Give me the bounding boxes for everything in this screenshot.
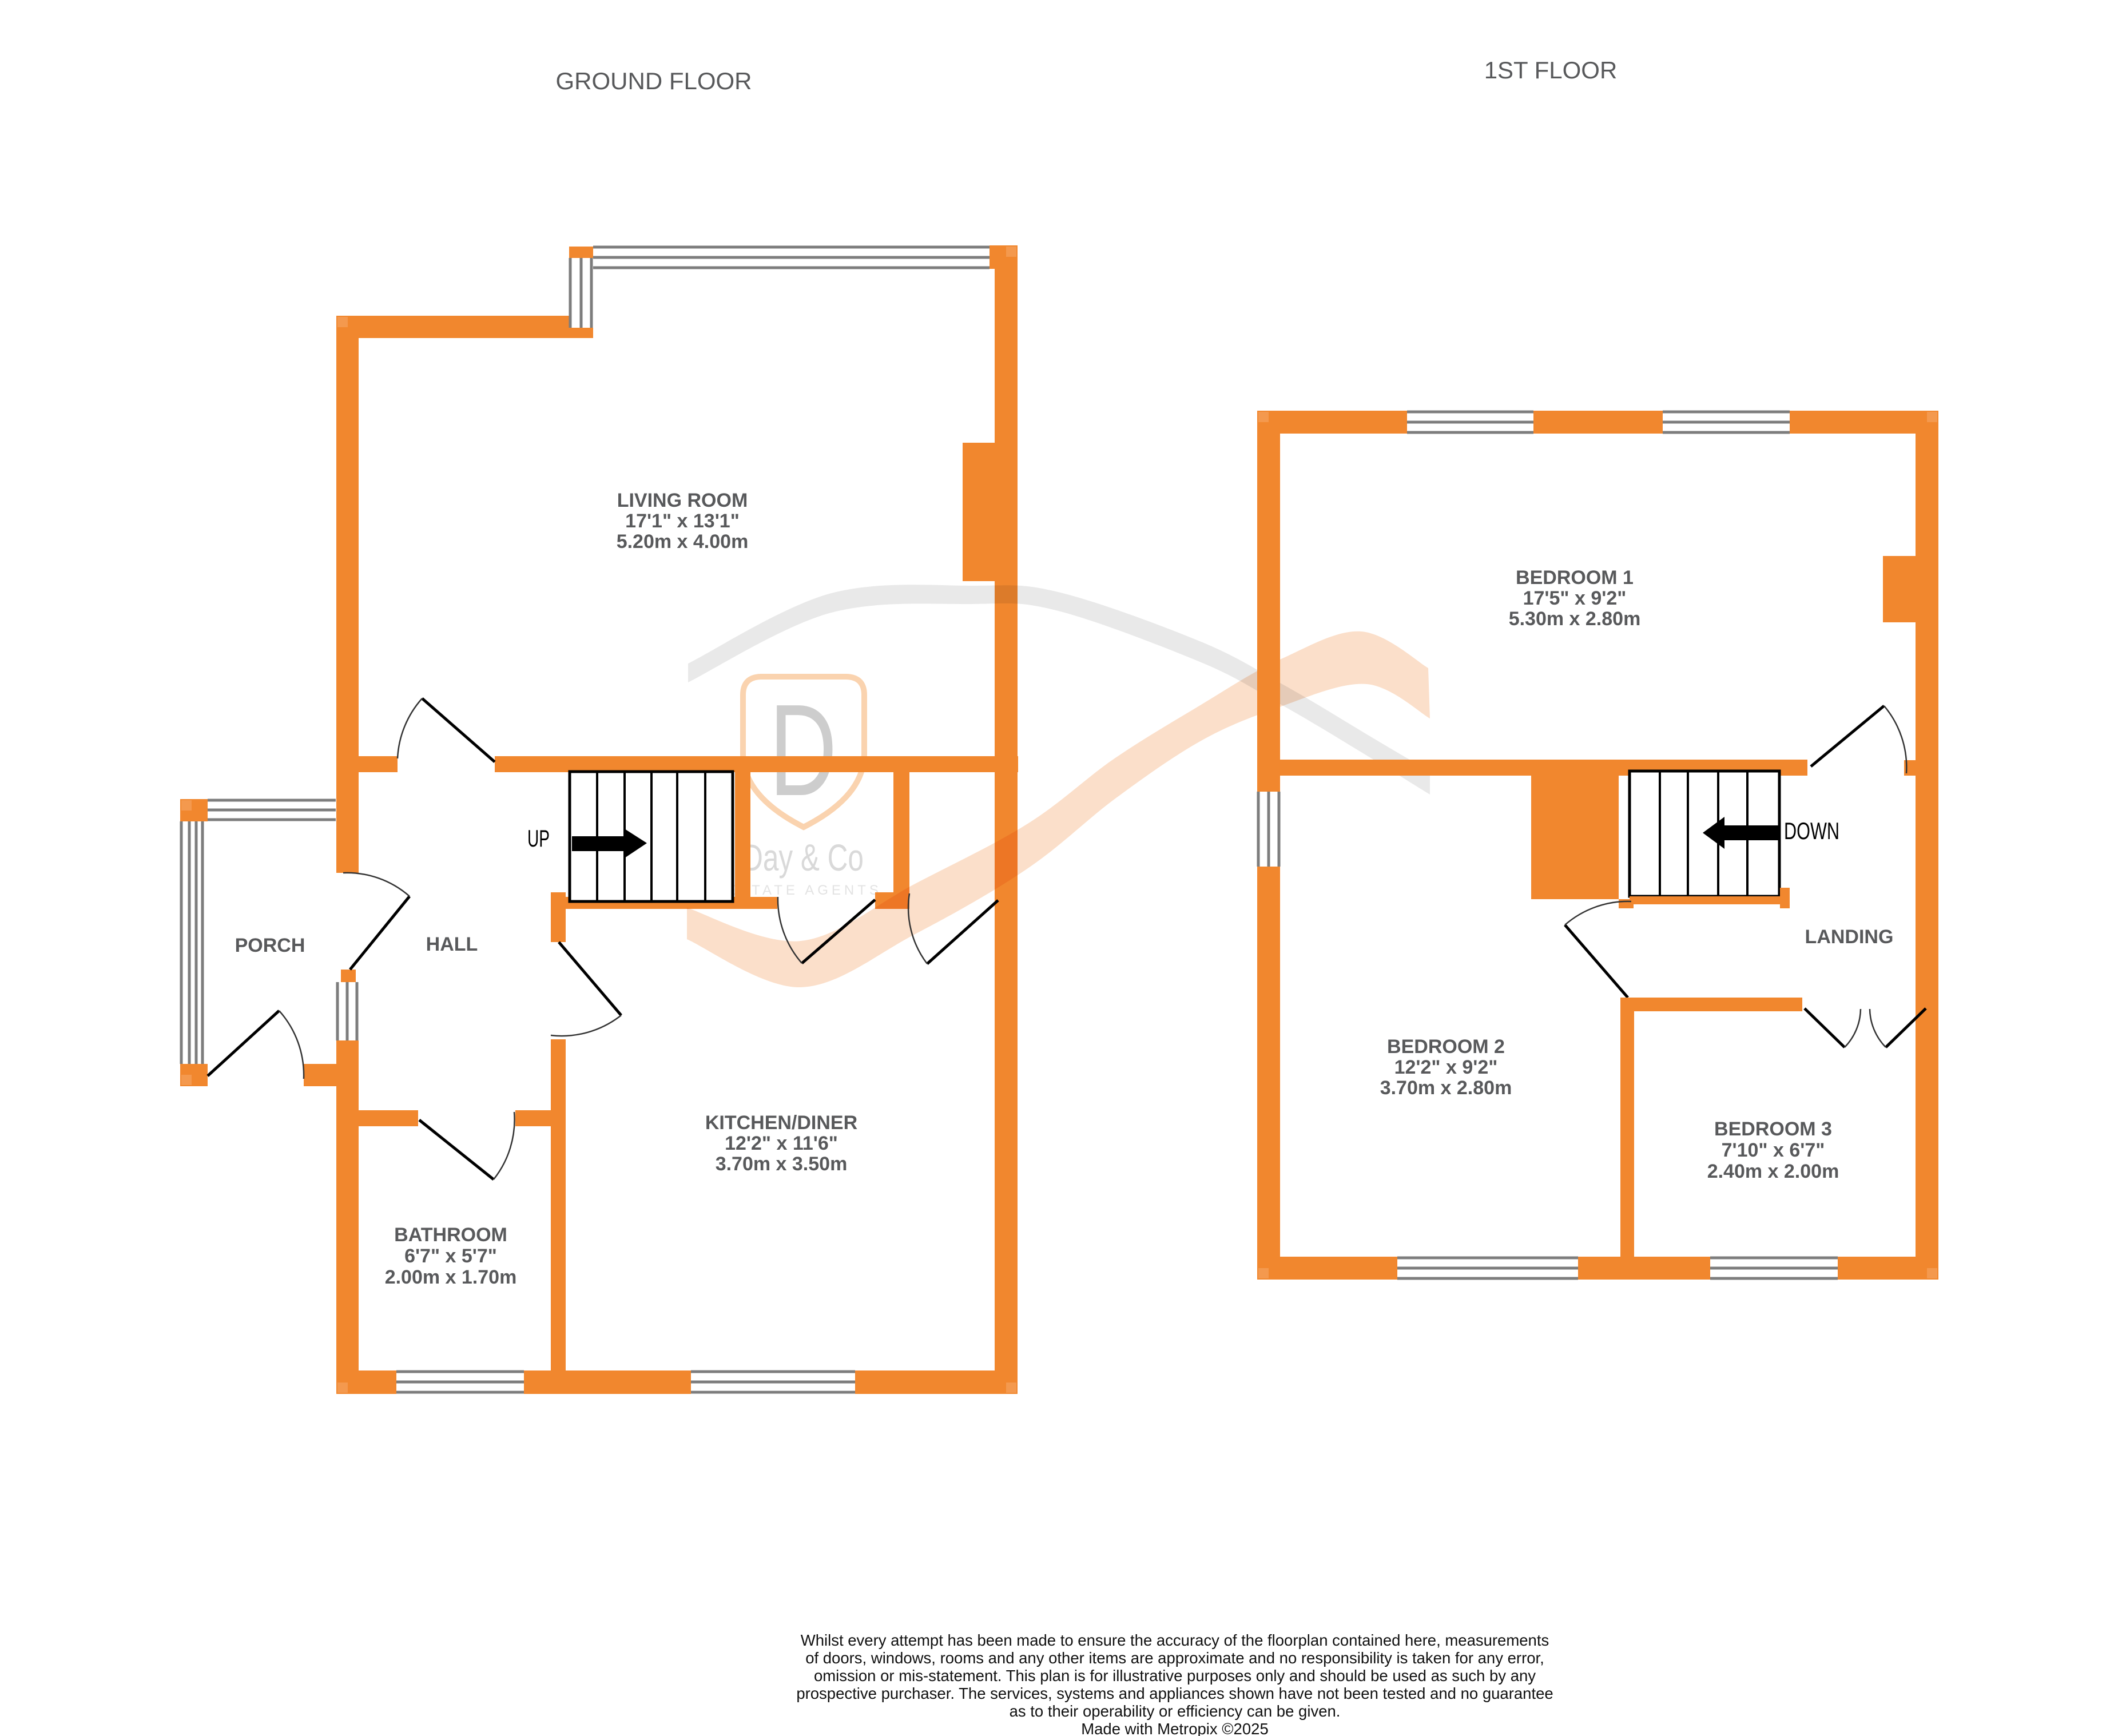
svg-text:5.30m x 2.80m: 5.30m x 2.80m: [1509, 608, 1641, 630]
svg-text:12'2" x 9'2": 12'2" x 9'2": [1394, 1056, 1498, 1078]
svg-text:17'1" x 13'1": 17'1" x 13'1": [625, 510, 740, 532]
svg-text:HALL: HALL: [426, 933, 478, 955]
svg-text:1ST FLOOR: 1ST FLOOR: [1484, 57, 1618, 84]
svg-text:LIVING ROOM: LIVING ROOM: [617, 490, 748, 511]
svg-text:GROUND FLOOR: GROUND FLOOR: [555, 67, 752, 94]
svg-text:2.40m x 2.00m: 2.40m x 2.00m: [1707, 1161, 1839, 1182]
svg-text:6'7" x 5'7": 6'7" x 5'7": [404, 1245, 497, 1267]
svg-text:Day & Co: Day & Co: [742, 837, 864, 879]
svg-text:of doors, windows, rooms and a: of doors, windows, rooms and any other i…: [805, 1649, 1544, 1667]
svg-text:prospective purchaser. The ser: prospective purchaser. The services, sys…: [796, 1685, 1553, 1702]
svg-text:BEDROOM 1: BEDROOM 1: [1516, 567, 1634, 589]
svg-text:7'10" x 6'7": 7'10" x 6'7": [1722, 1139, 1825, 1161]
svg-text:3.70m x 3.50m: 3.70m x 3.50m: [716, 1153, 848, 1175]
svg-text:BEDROOM 2: BEDROOM 2: [1387, 1036, 1505, 1058]
svg-text:3.70m x 2.80m: 3.70m x 2.80m: [1380, 1077, 1512, 1099]
svg-text:as to their operability or eff: as to their operability or efficiency ca…: [1010, 1702, 1341, 1720]
svg-text:12'2" x 11'6": 12'2" x 11'6": [725, 1133, 838, 1154]
svg-text:UP: UP: [527, 825, 550, 852]
svg-text:BEDROOM 3: BEDROOM 3: [1714, 1118, 1832, 1140]
svg-text:PORCH: PORCH: [235, 935, 305, 956]
svg-text:17'5" x 9'2": 17'5" x 9'2": [1523, 587, 1627, 609]
svg-text:omission or mis-statement. Thi: omission or mis-statement. This plan is …: [814, 1667, 1536, 1685]
svg-text:Whilst every attempt has been: Whilst every attempt has been made to en…: [801, 1631, 1549, 1649]
svg-text:BATHROOM: BATHROOM: [394, 1224, 507, 1246]
svg-text:Made with Metropix ©2025: Made with Metropix ©2025: [1081, 1720, 1269, 1736]
svg-text:DOWN: DOWN: [1784, 817, 1839, 844]
svg-text:5.20m x 4.00m: 5.20m x 4.00m: [617, 531, 749, 553]
svg-text:2.00m x 1.70m: 2.00m x 1.70m: [385, 1266, 517, 1288]
svg-text:D: D: [769, 678, 837, 824]
svg-text:KITCHEN/DINER: KITCHEN/DINER: [705, 1112, 857, 1134]
svg-text:LANDING: LANDING: [1805, 926, 1894, 948]
